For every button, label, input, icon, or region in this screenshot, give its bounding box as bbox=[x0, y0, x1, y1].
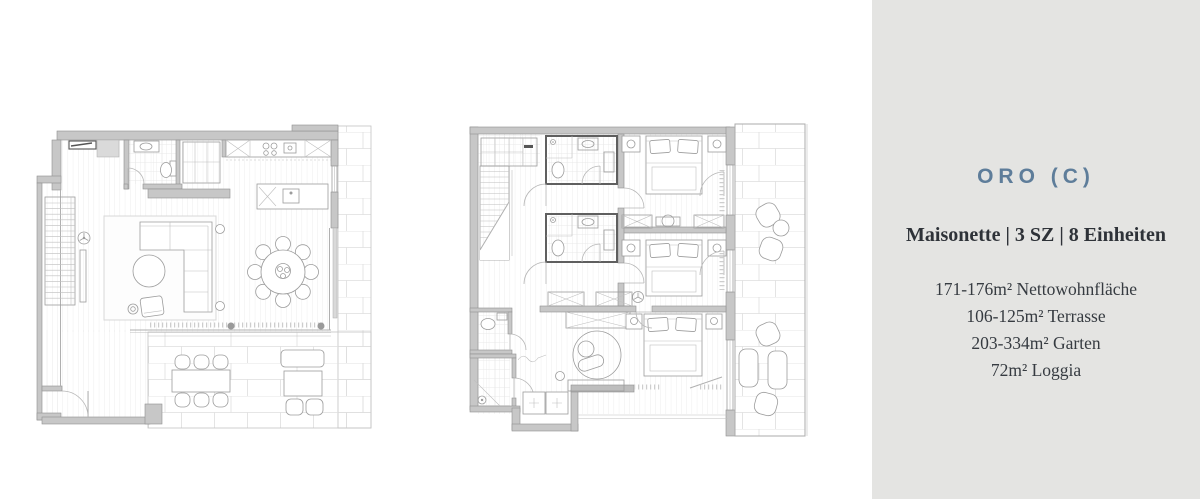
area-detail-net: 171-176m² Nettowohnfläche bbox=[872, 276, 1200, 303]
terrace-lounge bbox=[281, 350, 324, 415]
sofa-group bbox=[104, 216, 216, 320]
column bbox=[318, 323, 325, 330]
terrace-dining bbox=[172, 355, 230, 407]
column bbox=[216, 225, 225, 234]
floor-plan-lower bbox=[37, 125, 371, 428]
dining-table bbox=[248, 237, 319, 308]
unit-title: ORO (C) bbox=[872, 165, 1200, 189]
kitchen bbox=[226, 140, 331, 160]
area-details: 171-176m² Nettowohnfläche 106-125m² Terr… bbox=[872, 276, 1200, 384]
page: ORO (C) Maisonette | 3 SZ | 8 Einheiten … bbox=[0, 0, 1200, 499]
loggia-floor bbox=[735, 124, 805, 436]
column bbox=[228, 323, 235, 330]
floor-plans-canvas bbox=[0, 0, 872, 499]
column bbox=[216, 302, 225, 311]
floor-plan-upper bbox=[470, 124, 807, 436]
kitchen-island bbox=[257, 184, 328, 209]
area-detail-loggia: 72m² Loggia bbox=[872, 357, 1200, 384]
area-detail-terrasse: 106-125m² Terrasse bbox=[872, 303, 1200, 330]
area-detail-garten: 203-334m² Garten bbox=[872, 330, 1200, 357]
info-panel: ORO (C) Maisonette | 3 SZ | 8 Einheiten … bbox=[872, 0, 1200, 499]
unit-specs: Maisonette | 3 SZ | 8 Einheiten bbox=[872, 224, 1200, 247]
